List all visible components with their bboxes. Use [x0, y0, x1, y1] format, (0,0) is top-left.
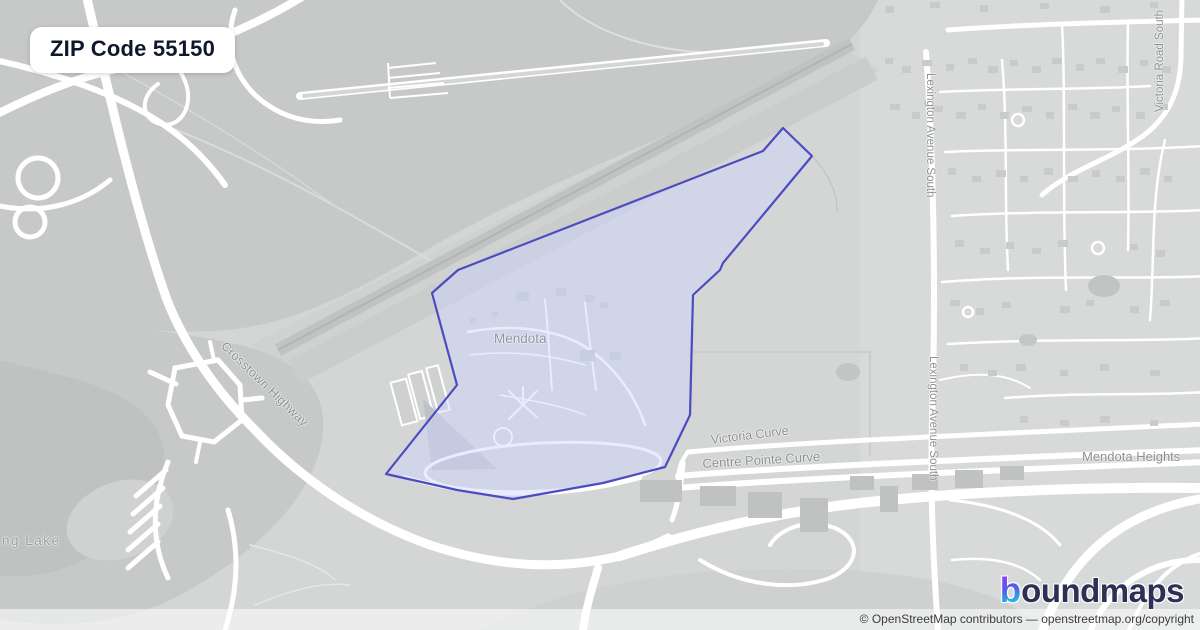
- boundmaps-logo: boundmaps: [1000, 573, 1184, 608]
- place-label-mendota: Mendota: [494, 331, 547, 346]
- road-label-lexington-avenue-south-south: Lexington Avenue South: [927, 356, 939, 480]
- map-share-card: Crosstown Highway Mendota Victoria Curve…: [0, 0, 1200, 630]
- boundmaps-b-icon: b: [1000, 573, 1021, 608]
- suburb-land: [860, 0, 1200, 630]
- attribution-text: © OpenStreetMap contributors — openstree…: [860, 612, 1194, 626]
- boundmaps-wordmark: oundmaps: [1021, 574, 1184, 607]
- road-label-lexington-avenue-south-north: Lexington Avenue South: [924, 73, 936, 197]
- attribution-bar: © OpenStreetMap contributors — openstree…: [0, 609, 1200, 630]
- place-label-lake-partial: ng Lake: [2, 533, 61, 548]
- map-canvas[interactable]: [0, 0, 1200, 630]
- place-label-mendota-heights: Mendota Heights: [1082, 449, 1180, 464]
- road-label-victoria-road-south: Victoria Road South: [1154, 10, 1166, 112]
- zip-code-badge: ZIP Code 55150: [30, 27, 235, 73]
